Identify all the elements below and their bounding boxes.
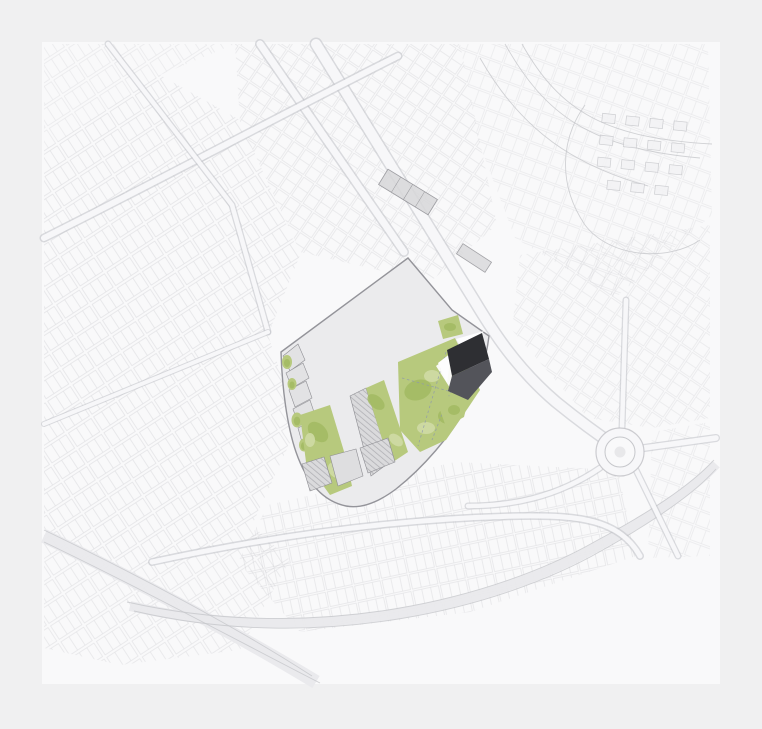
map-canvas (0, 0, 762, 729)
site-plan-image (0, 0, 762, 729)
roundabout (596, 428, 644, 476)
